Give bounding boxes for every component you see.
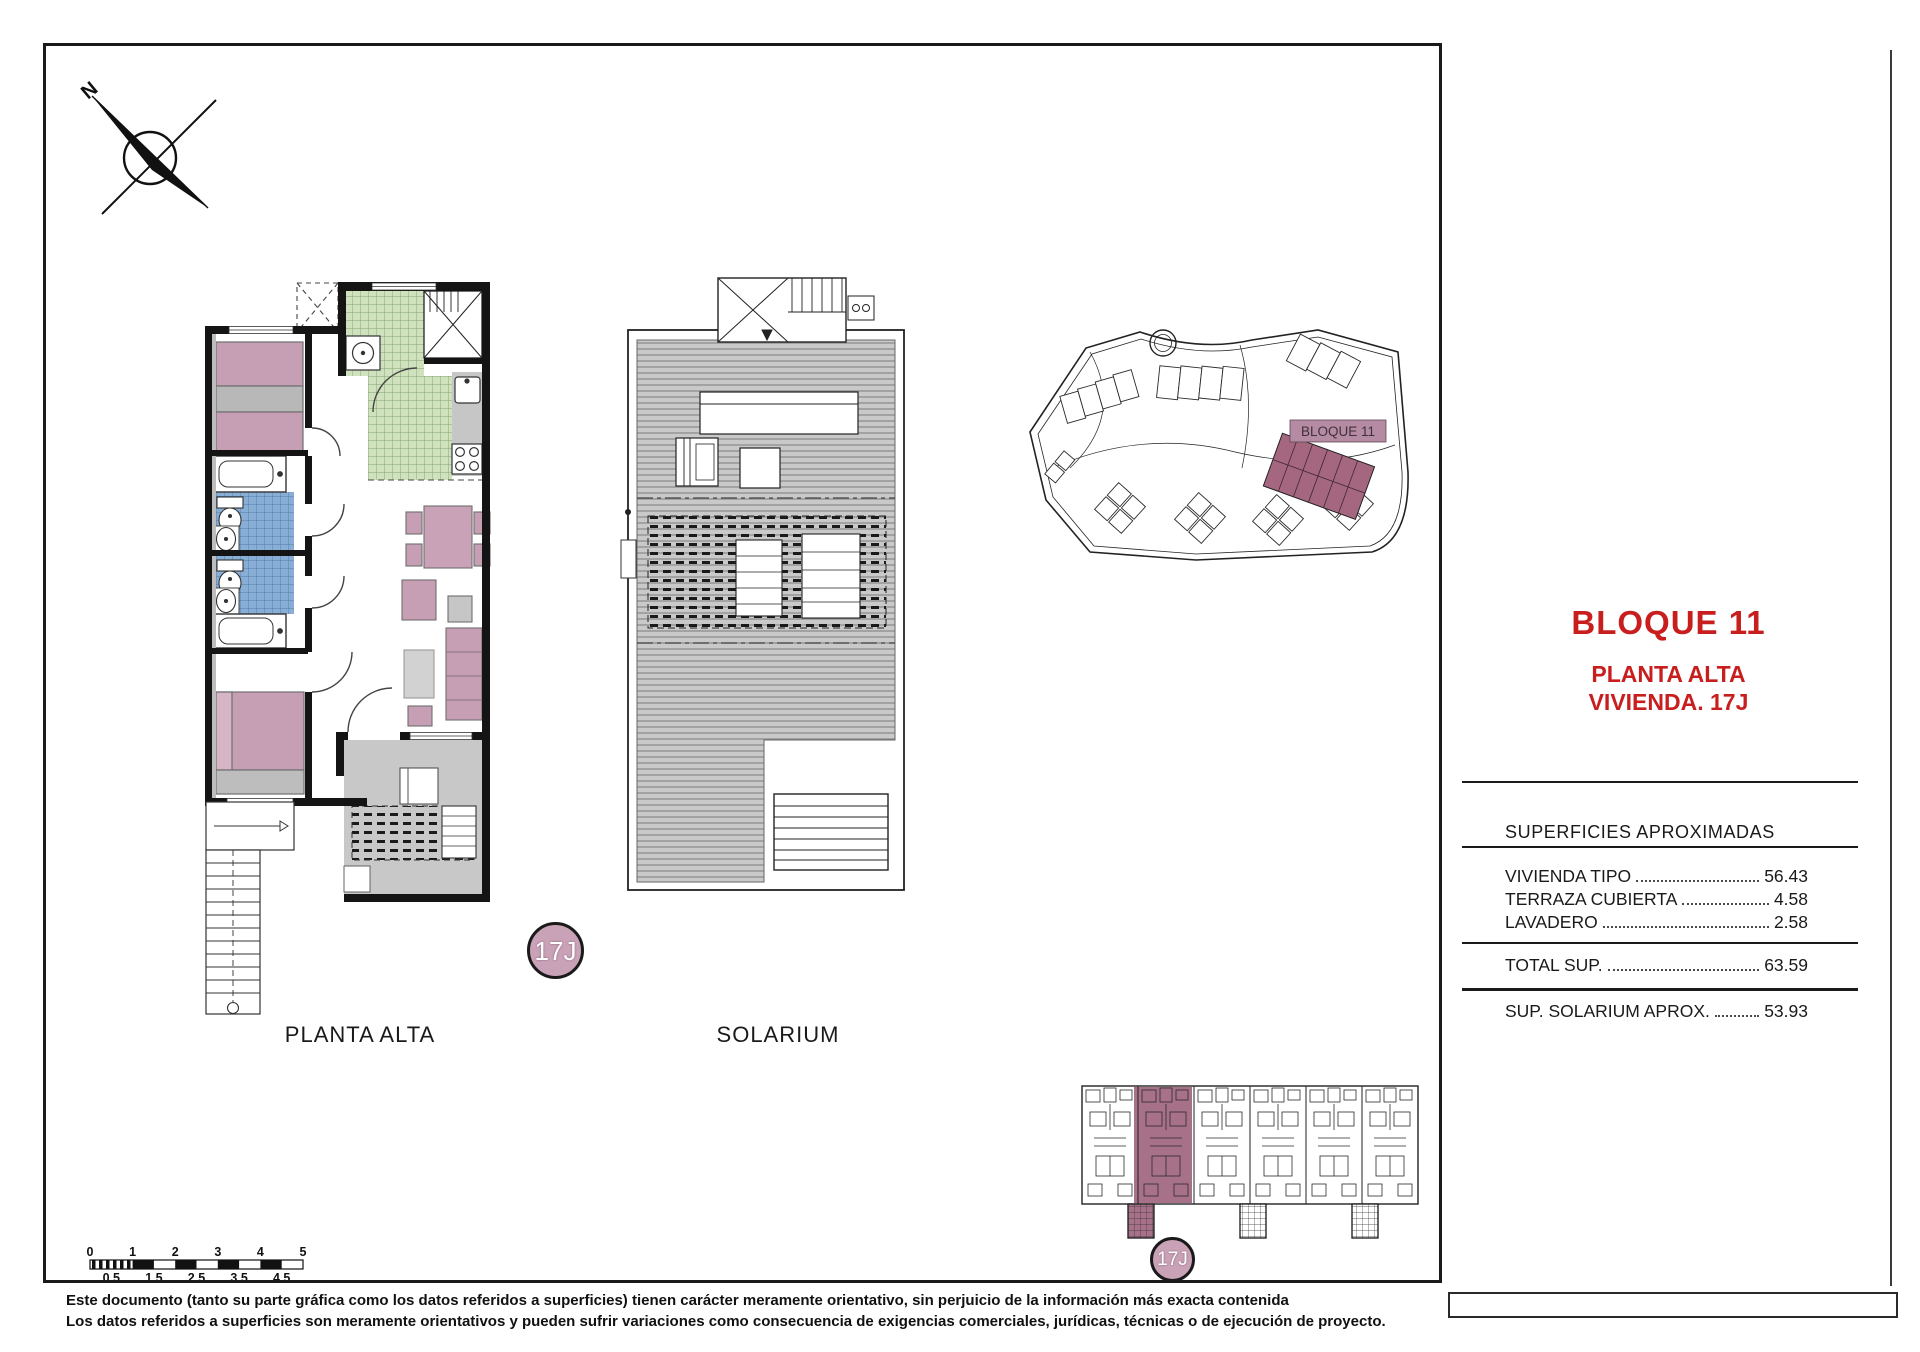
block-subtitle: PLANTA ALTA VIVIENDA. 17J (1445, 660, 1892, 716)
surface-value: 2.58 (1774, 912, 1808, 933)
surface-row: TERRAZA CUBIERTA 4.58 (1505, 889, 1808, 910)
key-plan-unit-badge: 17J (1150, 1237, 1195, 1282)
surface-label: LAVADERO (1505, 912, 1598, 933)
floor-plan-label: PLANTA ALTA (260, 1022, 460, 1048)
surfaces-heading: SUPERFICIES APROXIMADAS (1505, 822, 1775, 843)
surface-row: VIVIENDA TIPO 56.43 (1505, 866, 1808, 887)
dotted-leader (1608, 969, 1760, 971)
surface-label: TERRAZA CUBIERTA (1505, 889, 1677, 910)
sheet-border (43, 43, 1442, 1283)
unit-badge: 17J (527, 922, 584, 979)
surface-value: 56.43 (1764, 866, 1808, 887)
surface-value: 53.93 (1764, 1001, 1808, 1022)
solarium-plan-label: SOLARIUM (678, 1022, 878, 1048)
dotted-leader (1715, 1015, 1759, 1017)
divider (1462, 781, 1858, 783)
surface-label: VIVIENDA TIPO (1505, 866, 1631, 887)
surface-value: 4.58 (1774, 889, 1808, 910)
divider (1462, 846, 1858, 848)
plan-sheet: N (0, 0, 1920, 1352)
surface-label: SUP. SOLARIUM APROX. (1505, 1001, 1710, 1022)
block-title: BLOQUE 11 (1445, 604, 1892, 642)
dotted-leader (1603, 926, 1769, 928)
disclaimer-line2: Los datos referidos a superficies son me… (66, 1313, 1566, 1330)
unit-title: VIVIENDA. 17J (1445, 688, 1892, 716)
divider (1462, 942, 1858, 944)
dotted-leader (1682, 903, 1769, 905)
surface-value: 63.59 (1764, 955, 1808, 976)
surface-solarium-row: SUP. SOLARIUM APROX. 53.93 (1505, 1001, 1808, 1022)
surface-row: LAVADERO 2.58 (1505, 912, 1808, 933)
divider (1462, 988, 1858, 991)
disclaimer-line1: Este documento (tanto su parte gráfica c… (66, 1292, 1566, 1309)
surface-total-row: TOTAL SUP. 63.59 (1505, 955, 1808, 976)
surface-label: TOTAL SUP. (1505, 955, 1603, 976)
dotted-leader (1636, 880, 1759, 882)
floor-title: PLANTA ALTA (1445, 660, 1892, 688)
